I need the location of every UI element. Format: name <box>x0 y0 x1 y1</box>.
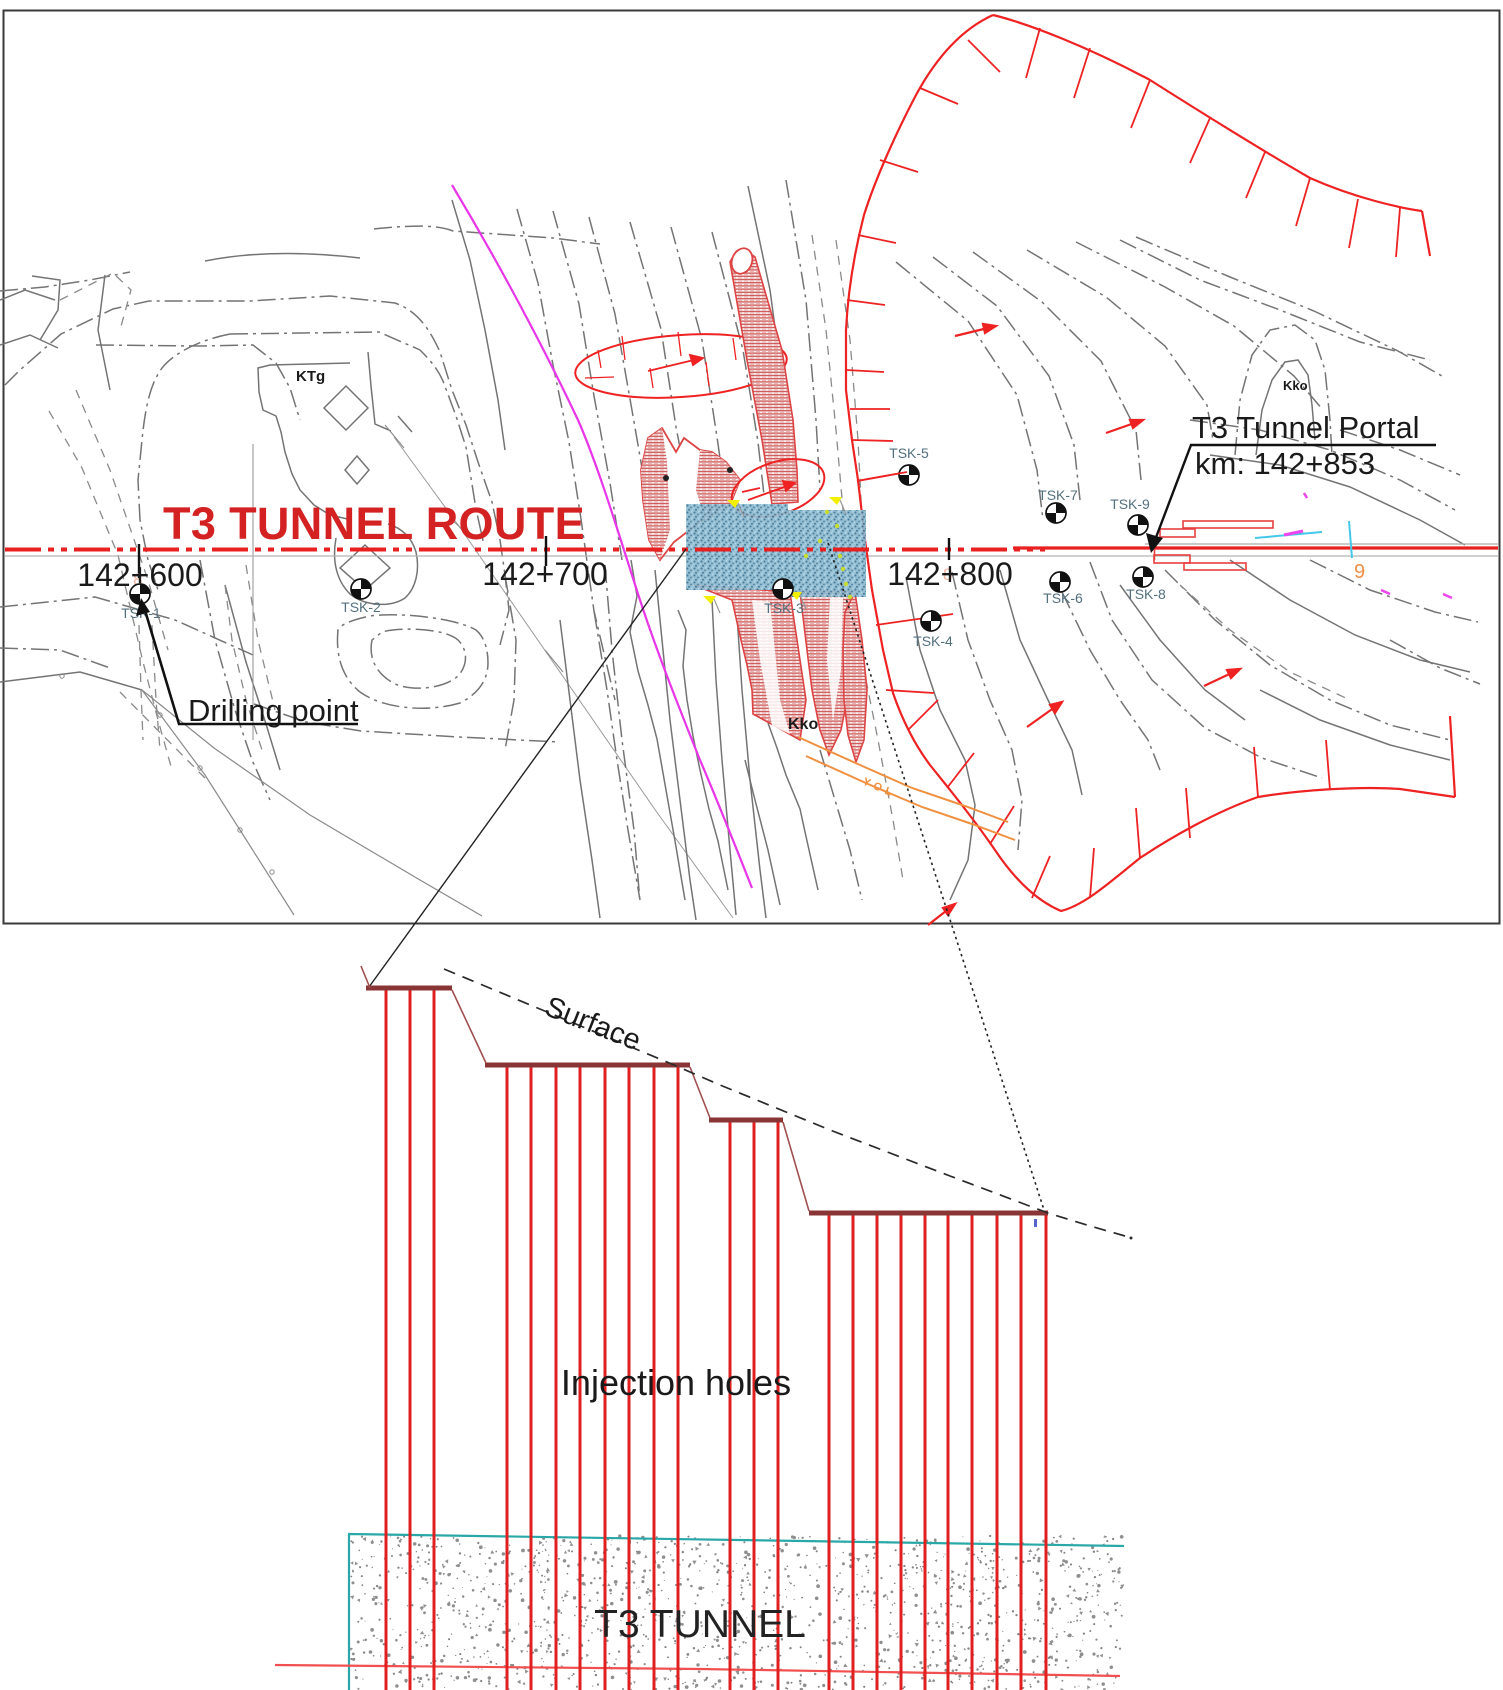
svg-text:TSK-7: TSK-7 <box>1038 487 1078 503</box>
svg-text:TSK-9: TSK-9 <box>1110 496 1150 512</box>
svg-text:TSK-6: TSK-6 <box>1043 590 1083 606</box>
svg-text:km: 142+853: km: 142+853 <box>1195 446 1375 481</box>
svg-text:TSK-4: TSK-4 <box>913 633 953 649</box>
svg-text:T3 TUNNEL ROUTE: T3 TUNNEL ROUTE <box>163 498 585 549</box>
svg-text:TSK-5: TSK-5 <box>889 445 929 461</box>
svg-text:TSK-8: TSK-8 <box>1126 586 1166 602</box>
svg-text:Kko: Kko <box>788 716 818 733</box>
svg-text:142+800: 142+800 <box>887 556 1012 592</box>
svg-text:Drilling point: Drilling point <box>188 693 359 728</box>
svg-text:Injection holes: Injection holes <box>561 1362 791 1403</box>
svg-text:TSK-3: TSK-3 <box>764 600 804 616</box>
svg-text:KTg: KTg <box>296 368 325 385</box>
svg-text:142+700: 142+700 <box>482 556 607 592</box>
svg-text:T3 Tunnel Portal: T3 Tunnel Portal <box>1192 410 1419 445</box>
svg-text:9: 9 <box>1354 561 1365 583</box>
svg-text:Kko: Kko <box>1283 378 1308 393</box>
svg-text:TSK-2: TSK-2 <box>341 599 381 615</box>
svg-text:T3 TUNNEL: T3 TUNNEL <box>594 1603 806 1646</box>
